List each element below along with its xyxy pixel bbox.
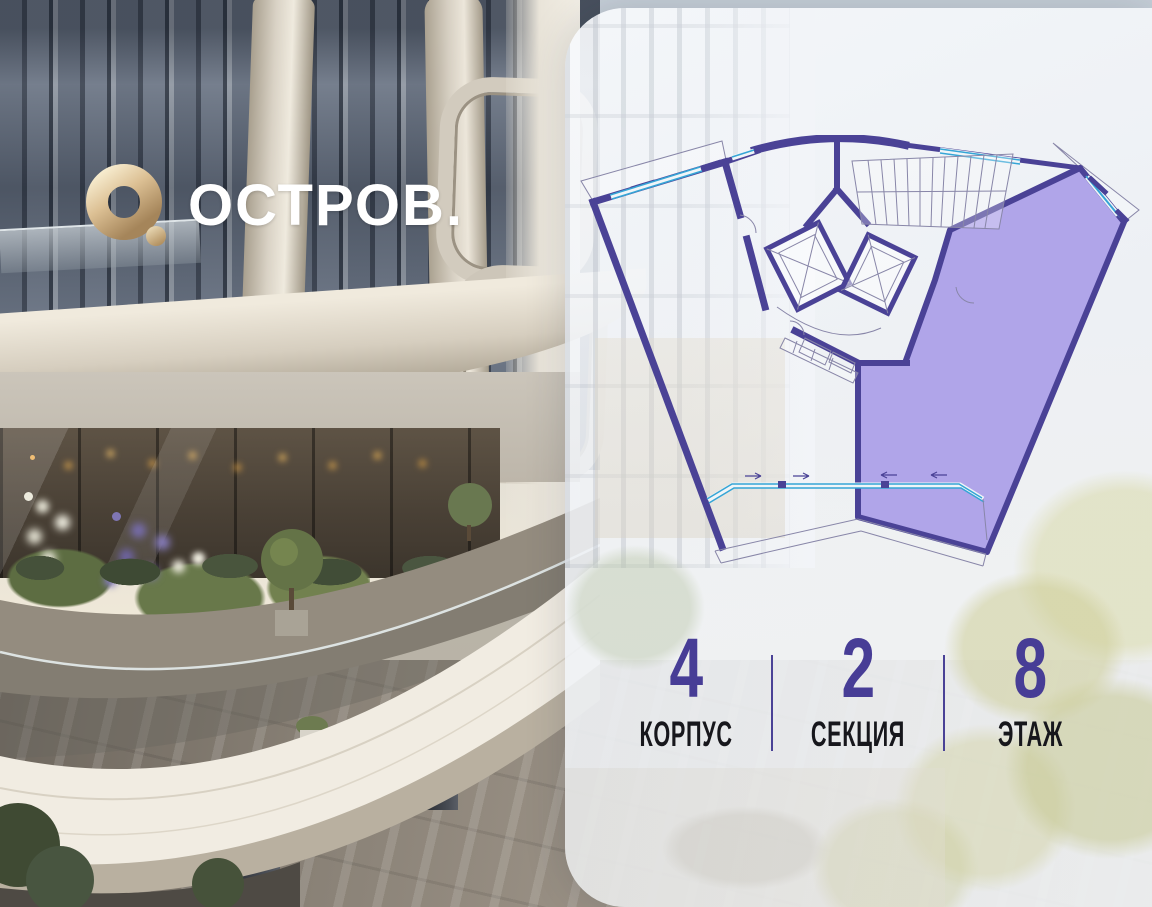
topiary-highlight [270,538,298,566]
tree-planter [275,610,308,636]
building-number: 4 [669,630,703,707]
info-building: 4 КОРПУС [600,630,772,755]
staircase-icon [852,154,1013,229]
floor-plan [575,135,1149,609]
elevator-2-icon [841,235,915,314]
page: ОСТРОВ. [0,0,1152,907]
floor-number: 8 [1013,630,1047,707]
apartment-card-panel: 4 КОРПУС 2 СЕКЦИЯ 8 ЭТАЖ [565,8,1152,907]
elevator-1-icon [767,223,850,310]
apartment-info-row: 4 КОРПУС 2 СЕКЦИЯ 8 ЭТАЖ [600,630,1116,755]
left-outer-wall [593,202,722,547]
brand-name: ОСТРОВ. [188,177,464,235]
tree-trunk [289,588,294,612]
washed-walkway [565,768,945,907]
building-label: КОРПУС [639,715,732,755]
window-direction-arrow [745,473,761,479]
brand-mark-ring-icon [86,160,168,252]
core-top-arc-wall [755,138,905,150]
section-label: СЕКЦИЯ [811,715,905,755]
section-number: 2 [841,630,875,707]
tree-trunk [467,525,471,541]
window-direction-arrow [793,473,809,479]
brand-logo: ОСТРОВ. [86,160,464,252]
floor-label: ЭТАЖ [997,715,1062,755]
terrace-art [0,0,600,907]
topiary-tree [448,483,492,527]
info-floor: 8 ЭТАЖ [944,630,1116,755]
info-section: 2 СЕКЦИЯ [772,630,944,755]
